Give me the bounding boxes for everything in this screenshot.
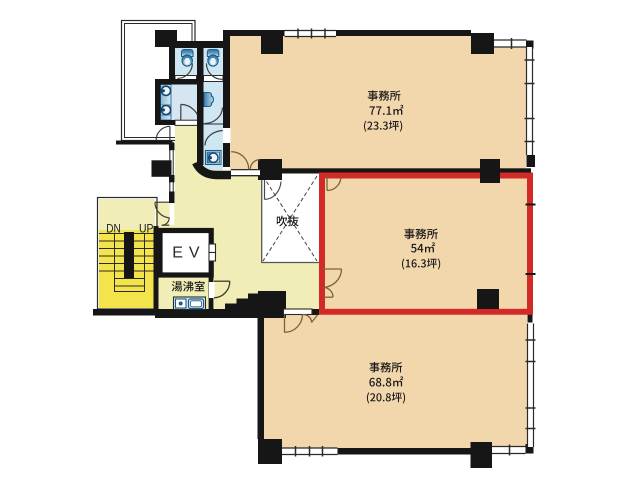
svg-text:E: E [172,245,183,262]
svg-text:UP: UP [139,222,154,236]
svg-text:DN: DN [106,222,121,236]
svg-text:V: V [189,245,200,262]
